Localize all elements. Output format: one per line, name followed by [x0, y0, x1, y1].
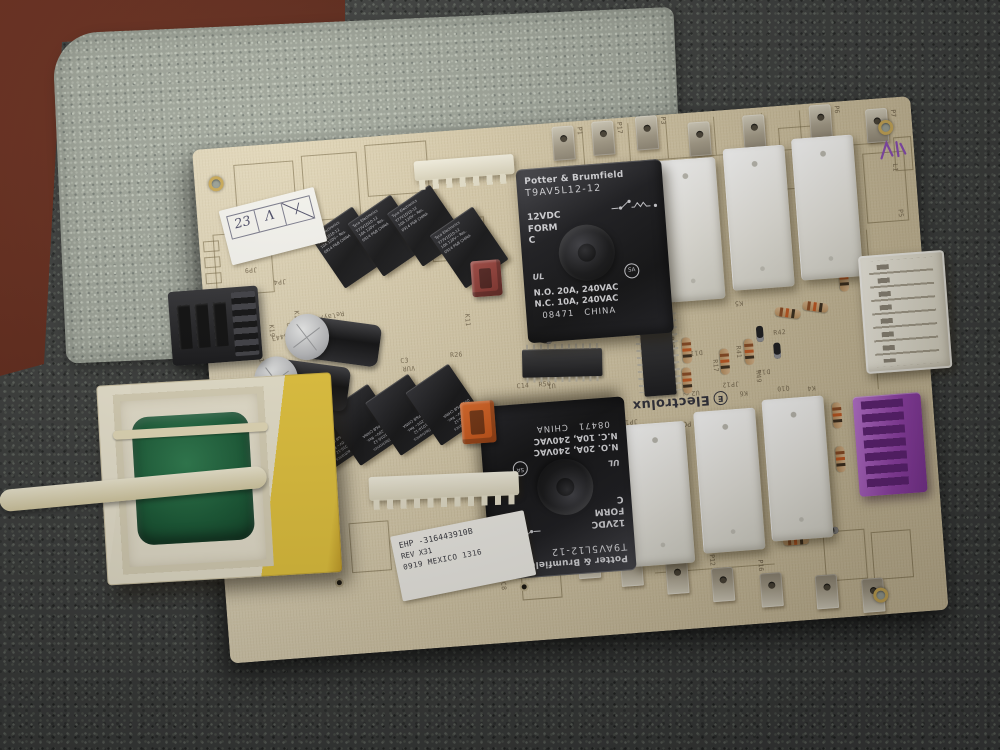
connector-purple-7pin	[852, 392, 927, 497]
white-relay	[761, 395, 833, 541]
silkscreen-trace	[665, 120, 669, 158]
white-relay	[791, 134, 863, 280]
resistor	[802, 301, 829, 313]
diode	[756, 326, 764, 342]
circuit-board: Potter & Brumfield T9AV5L12-12 12VDC FOR…	[192, 96, 949, 664]
resistor	[774, 307, 801, 319]
via-hole	[335, 578, 345, 588]
silkscreen-label: JP12	[722, 380, 739, 389]
resistor	[719, 348, 730, 375]
terminal-label: P7	[889, 109, 898, 117]
white-relay	[722, 145, 794, 291]
silkscreen-label: K11	[463, 314, 472, 327]
spade-terminal: P3	[635, 115, 659, 151]
connector-orange	[460, 400, 497, 444]
silkscreen-label: L1	[891, 163, 900, 172]
ul-mark: UL	[608, 458, 620, 468]
resistor	[835, 446, 846, 473]
electrolux-logo-icon: E	[713, 391, 728, 406]
spade-terminal: P6	[808, 104, 832, 140]
silkscreen-label: C8	[499, 582, 508, 591]
connector-white-8pin	[858, 250, 953, 374]
silkscreen-label: R26	[450, 350, 463, 359]
silkscreen-label: K6	[739, 389, 748, 398]
purple-marker-scribble	[877, 136, 909, 162]
mounting-hole	[873, 587, 889, 603]
silkscreen-label: JP9	[244, 265, 257, 274]
edge-connector-black	[168, 285, 263, 366]
silkscreen-outline	[348, 520, 392, 573]
silkscreen-label: P5	[896, 209, 905, 218]
spade-terminal: P12	[711, 567, 735, 603]
silkscreen-outline	[203, 240, 220, 252]
connector-pin-comb	[231, 291, 260, 357]
qc-cell: ∕	[282, 196, 315, 224]
silkscreen-trace	[627, 123, 631, 161]
silkscreen-label: K5	[734, 299, 743, 308]
spade-terminal: P16	[759, 572, 783, 608]
part-number-label: EHP -316443910B REV X31 0919 MEXICO 1316	[390, 510, 536, 601]
silkscreen-label: R42	[773, 328, 786, 337]
pin-header-top	[413, 154, 514, 181]
spade-terminal	[687, 121, 711, 157]
resistor	[681, 337, 692, 364]
silkscreen-outline	[871, 529, 914, 580]
silkscreen-label: U1	[547, 381, 556, 390]
connector-red	[470, 259, 503, 297]
white-relay	[693, 408, 765, 554]
silkscreen-outline	[205, 272, 222, 284]
silkscreen-label: JP4	[273, 277, 286, 286]
silkscreen-trace	[713, 117, 717, 155]
terminal-label: P16	[756, 559, 765, 571]
silkscreen-label: Q10	[777, 384, 790, 393]
relay-potter-brumfield-top: Potter & Brumfield T9AV5L12-12 12VDC FOR…	[515, 159, 674, 343]
terminal-label: P3	[659, 116, 668, 124]
terminal-label: P12	[708, 554, 717, 566]
resistor	[682, 367, 693, 394]
silkscreen-outline	[204, 256, 221, 268]
photo-scene: Potter & Brumfield T9AV5L12-12 12VDC FOR…	[0, 0, 1000, 750]
ul-mark: UL	[532, 272, 544, 282]
relay-schematic-icon	[609, 195, 660, 215]
spade-terminal: P1	[551, 125, 575, 161]
transformer	[96, 372, 342, 585]
spade-terminal: P17	[591, 120, 615, 156]
pin-header-bottom	[368, 471, 519, 501]
spade-terminal	[742, 114, 766, 150]
terminal-label: P17	[615, 122, 624, 134]
silkscreen-label: R41	[734, 345, 743, 358]
silkscreen-label: D12	[757, 367, 770, 376]
silkscreen-label: VUR	[402, 364, 415, 373]
diode	[773, 342, 781, 358]
mounting-hole	[878, 119, 894, 135]
csa-mark: SA	[624, 263, 640, 279]
mounting-hole	[208, 176, 224, 192]
resistor	[832, 402, 843, 429]
terminal-label: P1	[575, 127, 584, 135]
terminal-label: P6	[832, 105, 841, 113]
spade-terminal	[815, 574, 839, 610]
silkscreen-label: R17	[711, 359, 720, 372]
dip-ic	[522, 348, 603, 378]
electrolux-wordmark: Electrolux	[632, 392, 710, 413]
silkscreen-label: C14	[516, 381, 529, 390]
silkscreen-label: K4	[807, 384, 816, 393]
resistor	[744, 338, 755, 365]
